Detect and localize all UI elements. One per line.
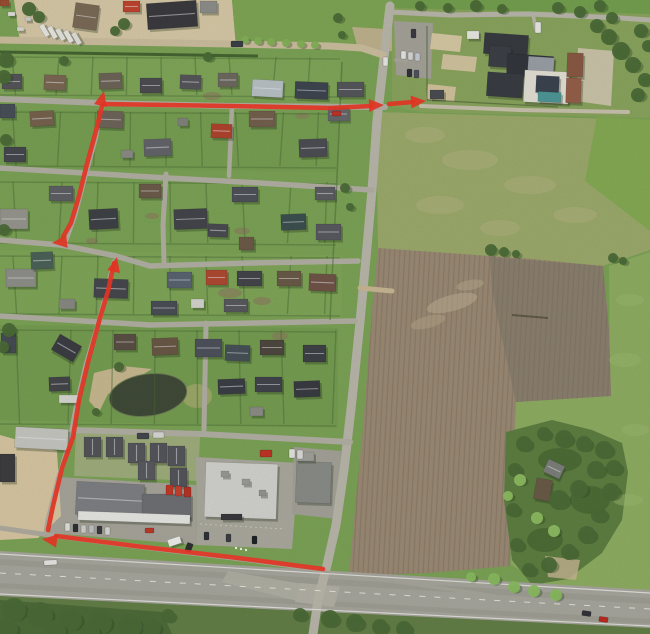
aerial-map bbox=[0, 0, 650, 634]
aerial-photo bbox=[0, 0, 650, 634]
photo-grain bbox=[0, 0, 650, 634]
